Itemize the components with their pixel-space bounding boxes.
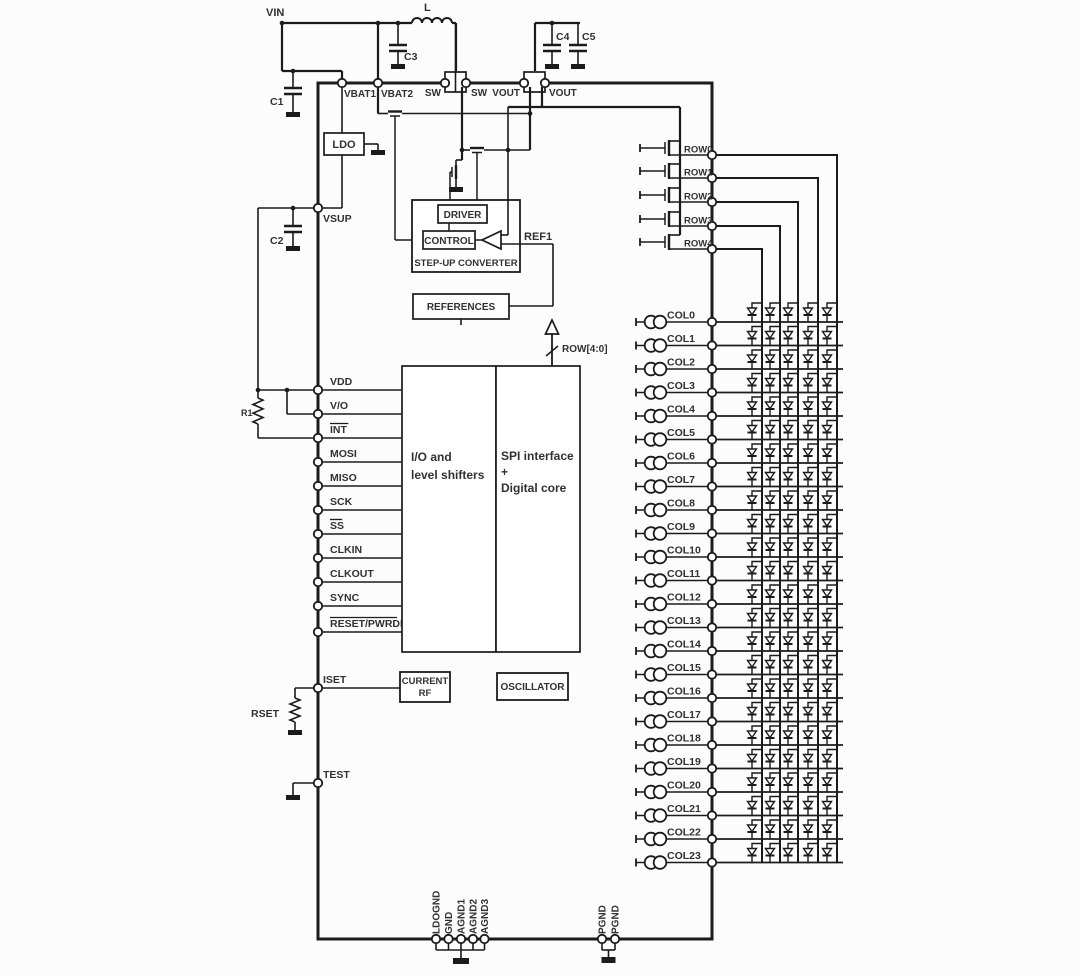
pin-label-gnd-rotated: GND — [444, 912, 455, 934]
pin-label-row2: ROW2 — [684, 192, 713, 203]
io-block-line: I/O and — [411, 450, 452, 464]
pin-label-sync: SYNC — [330, 592, 360, 604]
top-power-network: VINLC1C3C4C5 — [266, 2, 596, 117]
pin-label-agnd2-rotated: AGND2 — [469, 899, 480, 934]
pin-label-col12: COL12 — [667, 592, 701, 604]
pin-label-col2: COL2 — [667, 357, 695, 369]
inductor-label: L — [424, 2, 431, 14]
vin-label: VIN — [266, 7, 284, 19]
oscillator-block-label: OSCILLATOR — [500, 682, 565, 693]
pin-label-reset/pwrdn: RESET/PWRDN — [330, 618, 408, 630]
step-up-converter: STEP-UP CONVERTERDRIVERCONTROLREF1REFERE… — [378, 23, 680, 325]
pin-label-col10: COL10 — [667, 545, 701, 557]
pin-label-int: INT — [330, 424, 348, 436]
pin-label-col3: COL3 — [667, 380, 695, 392]
row-drivers: ROW0ROW1ROW2ROW3ROW4 — [640, 107, 716, 253]
pin-label-col14: COL14 — [667, 639, 701, 651]
pin-label-agnd1-rotated: AGND1 — [457, 899, 468, 934]
pin-label-vbat1: VBAT1 — [344, 89, 376, 100]
stepup-block-label: STEP-UP CONVERTER — [414, 258, 517, 269]
pin-label-row0: ROW0 — [684, 145, 713, 156]
pin-label-col9: COL9 — [667, 521, 695, 533]
current-ref-line: RF — [419, 688, 432, 699]
control-block-label: CONTROL — [424, 236, 473, 247]
pin-label-vout2: VOUT — [549, 88, 577, 99]
pin-label-mosi: MOSI — [330, 448, 357, 460]
spi-block-line: Digital core — [501, 481, 567, 495]
pin-label-col15: COL15 — [667, 662, 701, 674]
ref1-net-label: REF1 — [524, 231, 552, 243]
pin-label-v/o: V/O — [330, 400, 348, 412]
pin-label-vbat2: VBAT2 — [381, 89, 413, 100]
pin-label-clkout: CLKOUT — [330, 568, 374, 580]
pin-label-vsup: VSUP — [323, 213, 352, 225]
col-drivers: COL0COL1COL2COL3COL4COL5COL6COL7COL8COL9… — [636, 310, 716, 869]
pin-label-pgnd-rotated: PGND — [598, 905, 609, 934]
driver-block-label: DRIVER — [444, 210, 483, 221]
c3-label: C3 — [404, 51, 418, 63]
pin-label-agnd3-rotated: AGND3 — [480, 899, 491, 934]
rset-label: RSET — [251, 708, 280, 720]
c4-label: C4 — [556, 31, 570, 43]
io-block-line: level shifters — [411, 468, 485, 482]
pin-label-sw2: SW — [471, 88, 488, 99]
led-matrix — [716, 155, 843, 863]
pin-label-col6: COL6 — [667, 451, 695, 463]
pin-label-col8: COL8 — [667, 498, 695, 510]
schematic-canvas: VINLC1C3C4C5VBAT1VBAT2SWSWVOUTVOUTLDOVSU… — [0, 0, 1080, 975]
pin-label-row4: ROW4 — [684, 239, 713, 250]
pin-label-col5: COL5 — [667, 427, 695, 439]
pin-label-row3: ROW3 — [684, 216, 713, 227]
pin-label-col23: COL23 — [667, 850, 701, 862]
pin-label-sck: SCK — [330, 496, 353, 508]
pin-label-iset: ISET — [323, 674, 347, 686]
c5-label: C5 — [582, 31, 596, 43]
pin-label-col20: COL20 — [667, 780, 701, 792]
pin-label-ldognd-rotated: LDOGND — [432, 891, 443, 934]
current-ref-line: CURRENT — [402, 676, 449, 687]
pin-label-col21: COL21 — [667, 803, 701, 815]
references-block-label: REFERENCES — [427, 302, 496, 313]
pin-label-col16: COL16 — [667, 686, 701, 698]
pin-label-row1: ROW1 — [684, 168, 713, 179]
ldo-section: LDOVSUPC2R1 — [241, 87, 385, 438]
pin-label-col4: COL4 — [667, 404, 695, 416]
pin-label-clkin: CLKIN — [330, 544, 362, 556]
pin-label-col11: COL11 — [667, 568, 700, 580]
spi-block-line: SPI interface — [501, 449, 574, 463]
row-bus-label: ROW[4:0] — [562, 344, 608, 355]
pin-label-test: TEST — [323, 769, 350, 781]
c2-label: C2 — [270, 235, 284, 247]
pin-label-vdd: VDD — [330, 376, 353, 388]
spi-block-line: + — [501, 465, 508, 479]
pin-label-col18: COL18 — [667, 733, 701, 745]
pin-label-col17: COL17 — [667, 709, 701, 721]
pin-label-col0: COL0 — [667, 310, 695, 322]
pin-label-col19: COL19 — [667, 756, 701, 768]
pin-label-vout: VOUT — [492, 88, 520, 99]
pin-label-col7: COL7 — [667, 474, 695, 486]
left-pins: VDDV/OINTMOSIMISOSCKSSCLKINCLKOUTSYNCRES… — [251, 376, 408, 800]
bottom-pins: LDOGNDGNDAGND1AGND2AGND3PGNDPGND — [432, 891, 622, 964]
pin-label-col13: COL13 — [667, 615, 701, 627]
pin-label-sw: SW — [425, 88, 442, 99]
c1-label: C1 — [270, 96, 284, 108]
ldo-block-label: LDO — [332, 139, 356, 151]
led-driver-block-diagram: VINLC1C3C4C5VBAT1VBAT2SWSWVOUTVOUTLDOVSU… — [0, 0, 1080, 975]
pin-label-ss: SS — [330, 520, 344, 532]
pin-label-pgnd-rotated: PGND — [611, 905, 622, 934]
core-blocks: I/O andlevel shiftersSPI interface+Digit… — [400, 320, 608, 702]
pin-label-col22: COL22 — [667, 827, 701, 839]
r1-label: R1 — [241, 408, 253, 418]
pin-label-col1: COL1 — [667, 333, 695, 345]
pin-label-miso: MISO — [330, 472, 357, 484]
